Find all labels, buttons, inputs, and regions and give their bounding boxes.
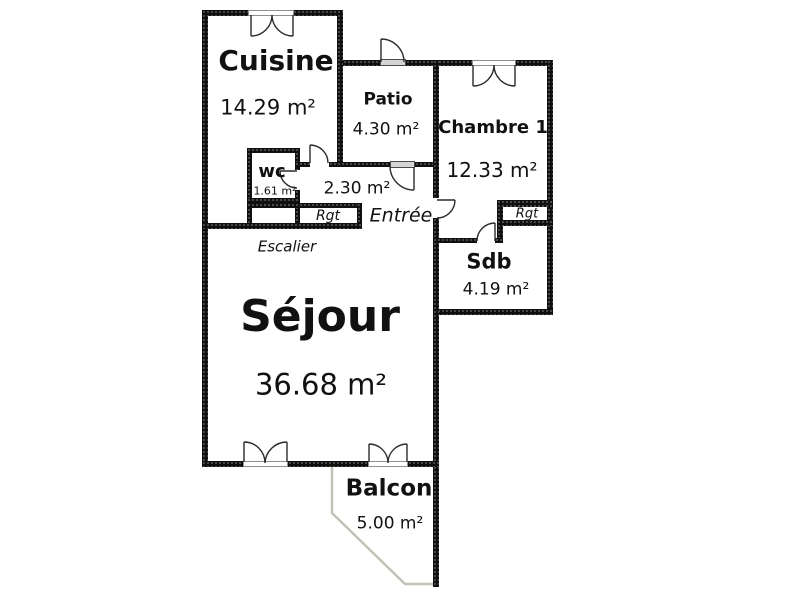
cuisine-door-swing: [310, 145, 328, 163]
floor-plan: Cuisine 14.29 m² Patio 4.30 m² Chambre 1…: [0, 0, 800, 600]
room-label-sdb: Sdb: [466, 252, 511, 273]
room-label-chambre1: Chambre 1: [438, 119, 548, 137]
room-area-patio: 4.30 m²: [353, 122, 420, 139]
room-area-sejour: 36.68 m²: [255, 371, 387, 400]
front-door-panel: [391, 162, 415, 168]
room-area-cuisine: 14.29 m²: [220, 98, 316, 119]
room-label-patio: Patio: [363, 92, 412, 109]
sejour-window2-swing: [369, 444, 407, 463]
rgt-right-label: Rgt: [516, 208, 538, 221]
hall-area: 2.30 m²: [324, 181, 391, 198]
chambre-window-sill: [473, 61, 516, 66]
front-door-swing: [390, 166, 414, 190]
room-label-balcon: Balcon: [346, 478, 433, 501]
chambre-door-swing: [437, 200, 455, 218]
room-area-chambre1: 12.33 m²: [446, 160, 537, 180]
rgt-left-label: Rgt: [316, 209, 340, 223]
room-label-wc: wc: [258, 163, 285, 181]
room-label-sejour: Séjour: [240, 295, 400, 339]
room-area-wc: 1.61 m²: [253, 186, 296, 197]
cuisine-window-swing: [251, 15, 293, 36]
escalier-label: Escalier: [258, 240, 316, 255]
room-area-balcon: 5.00 m²: [357, 516, 424, 533]
room-label-cuisine: Cuisine: [218, 47, 333, 75]
door-panels: [381, 60, 415, 168]
cuisine-window-sill: [249, 11, 294, 16]
entree-label: Entrée: [370, 207, 433, 226]
sejour-window1-swing: [244, 442, 287, 463]
patio-door-panel: [381, 60, 406, 66]
chambre-window-swing: [473, 65, 515, 86]
room-area-sdb: 4.19 m²: [463, 282, 530, 299]
patio-door-swing: [381, 39, 404, 62]
sdb-door-swing: [477, 223, 495, 241]
